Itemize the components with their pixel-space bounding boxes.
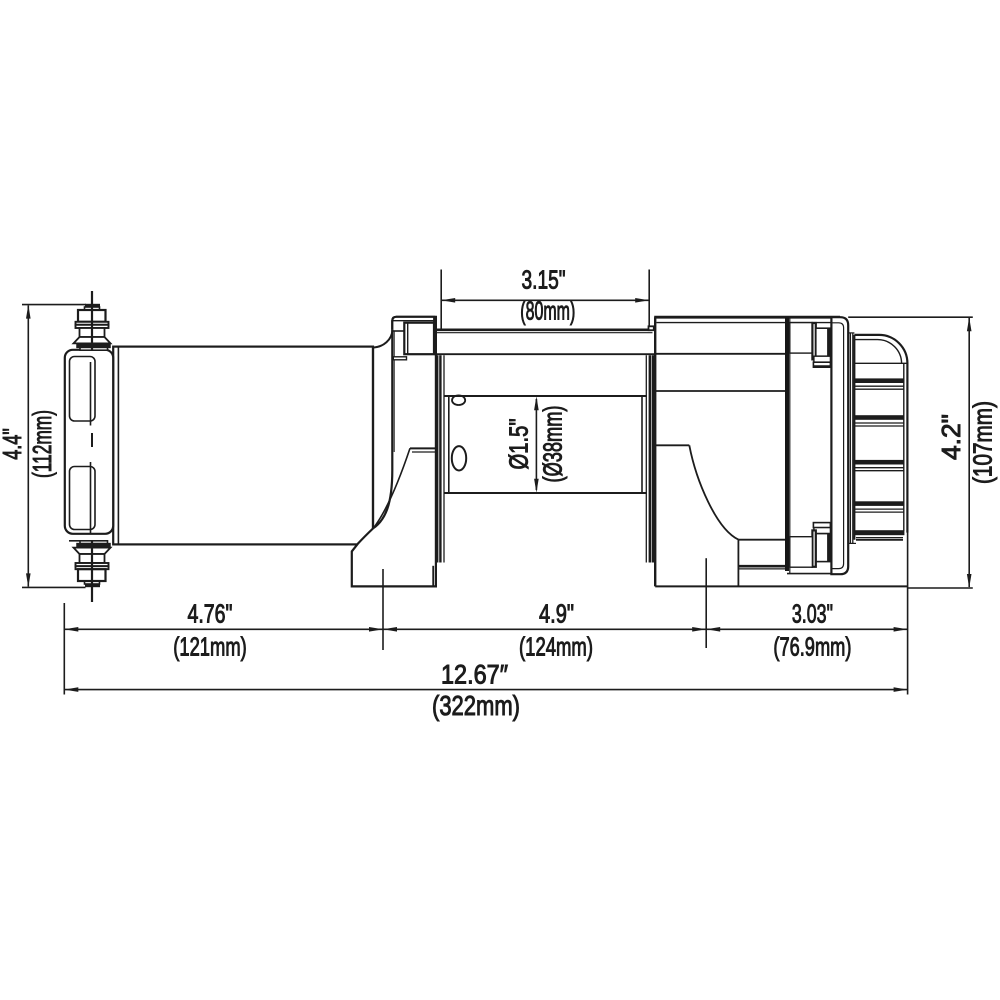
svg-text:(112mm): (112mm) <box>27 410 57 478</box>
svg-text:(322mm): (322mm) <box>432 690 520 721</box>
svg-text:(124mm): (124mm) <box>519 632 593 662</box>
svg-text:3.15": 3.15" <box>522 265 566 295</box>
svg-text:(Ø38mm): (Ø38mm) <box>538 406 568 483</box>
svg-text:(107mm): (107mm) <box>968 401 998 484</box>
svg-text:(76.9mm): (76.9mm) <box>773 632 851 662</box>
svg-text:12.67″: 12.67″ <box>441 660 508 690</box>
svg-text:4.76": 4.76" <box>188 599 233 629</box>
svg-text:(80mm): (80mm) <box>520 295 575 325</box>
svg-text:(121mm): (121mm) <box>173 632 247 662</box>
svg-text:4.4": 4.4" <box>0 428 27 460</box>
svg-text:4.9": 4.9" <box>539 599 574 629</box>
svg-text:Ø1.5": Ø1.5" <box>504 419 534 470</box>
svg-text:3.03": 3.03" <box>792 599 833 629</box>
svg-text:4.2": 4.2" <box>936 414 966 460</box>
